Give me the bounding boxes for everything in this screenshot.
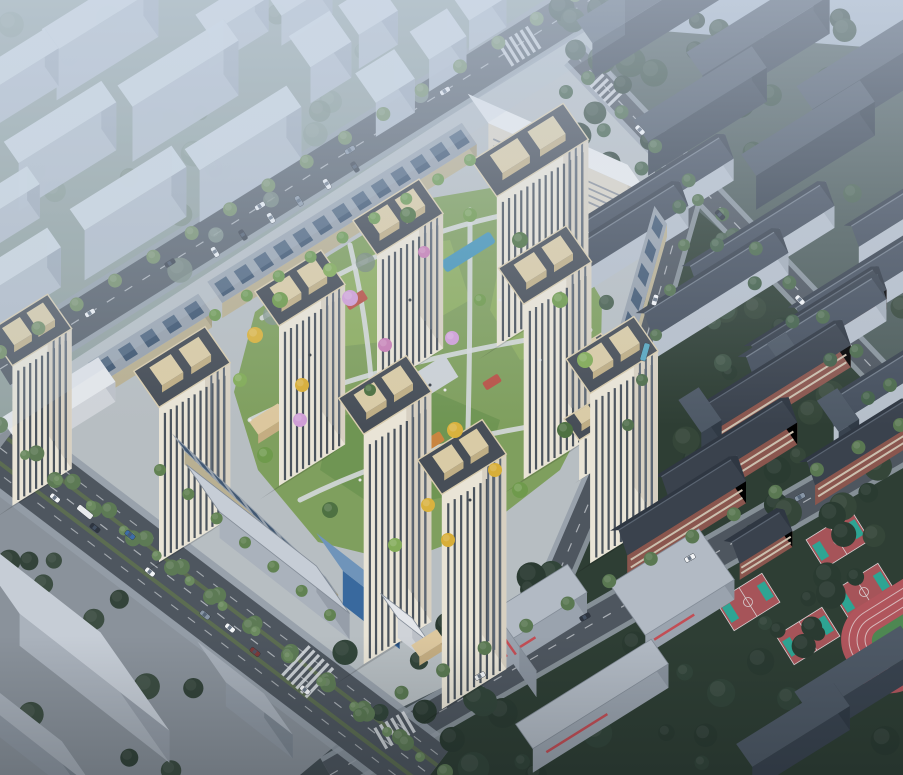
bottom-vignette — [0, 0, 903, 775]
atmosphere-layer — [0, 0, 903, 775]
aerial-masterplan-render — [0, 0, 903, 775]
render-stage — [0, 0, 903, 775]
